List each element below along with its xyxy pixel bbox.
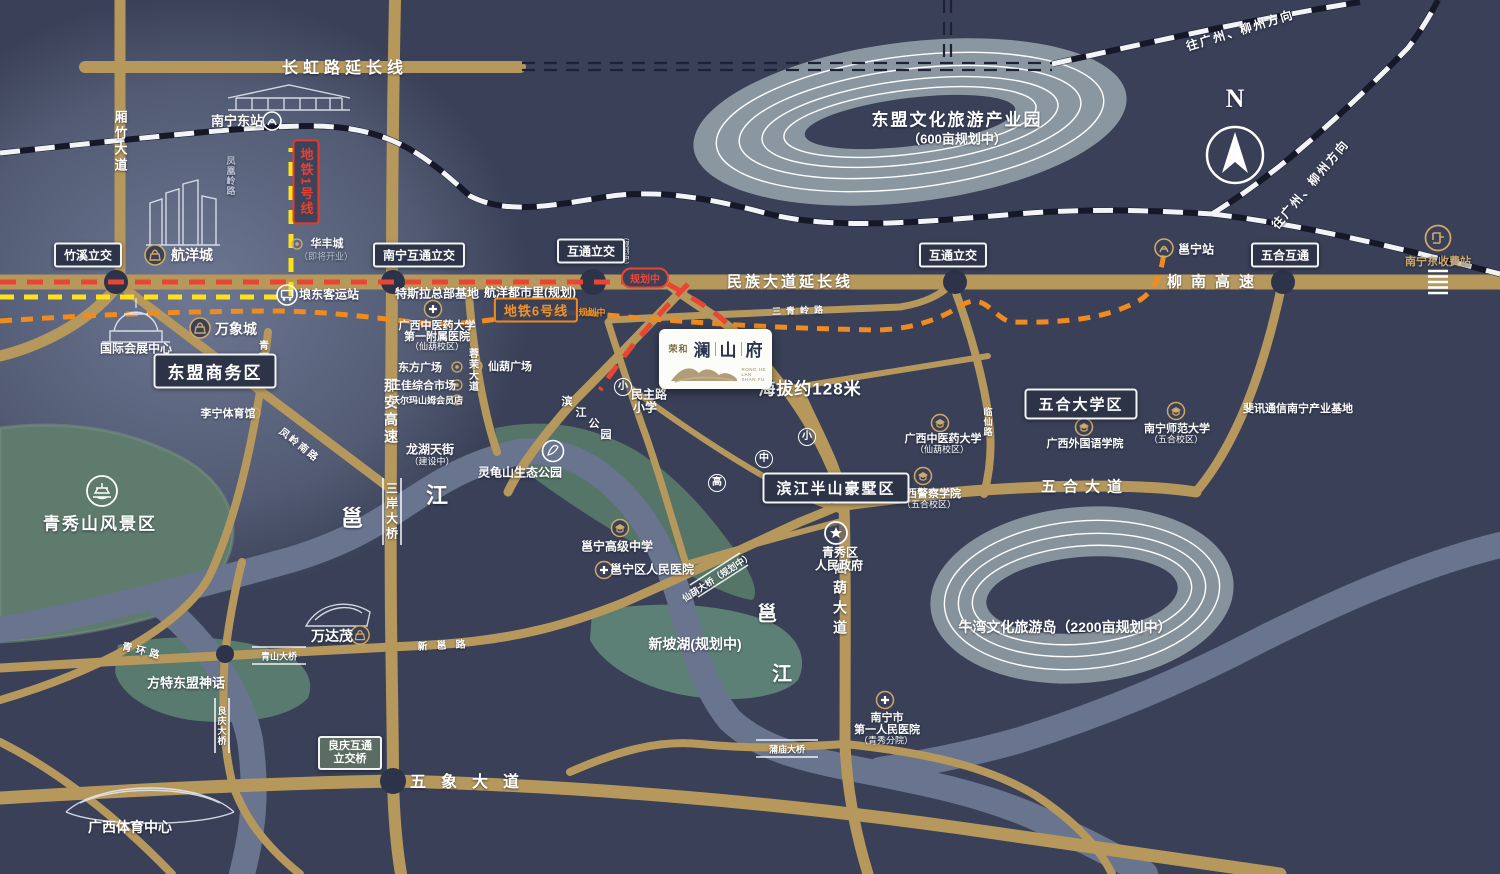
middle-school-marker: 中	[755, 450, 773, 468]
park-label-binjiang-char: 园	[601, 426, 612, 442]
label-walmart-sams: 沃尔玛山姆会员店	[391, 394, 463, 407]
logo-brand: 荣和	[668, 342, 688, 355]
road-label-liunan: 柳南高速	[1167, 271, 1263, 292]
label-niuwan-island: 牛湾文化旅游岛（2200亩规划中）	[958, 617, 1171, 637]
badge-line1: 良庆互通	[328, 740, 372, 752]
park-label-binjiang-char: 滨	[562, 393, 573, 409]
label-huafengcheng-sub: （即将开业）	[299, 250, 353, 263]
label-normal-university-campus: （五合校区）	[1149, 433, 1203, 446]
logo-char-fu: 府	[746, 336, 763, 361]
bridge-label-pumiao: 蒲庙大桥	[769, 743, 805, 756]
school-icon	[610, 518, 630, 538]
road-label-minzu: 民族大道延长线	[727, 271, 853, 292]
label-lining-gym: 李宁体育馆	[201, 405, 256, 421]
label-hangyangcheng: 航洋城	[171, 245, 213, 265]
road-label-sanqingling: 三青岭路	[772, 303, 828, 318]
high-school-marker: 高	[708, 474, 726, 492]
metro-line1-label: 地铁1号线	[293, 139, 320, 224]
road-label-xinyong: 新邕路	[417, 635, 475, 653]
label-tesla-base: 特斯拉总部基地	[395, 285, 479, 302]
label-gx-sports-center: 广西体育中心	[88, 817, 172, 837]
river-label-jiang: 江	[426, 478, 448, 510]
label-linggui-eco-park: 灵龟山生态公园	[478, 464, 562, 481]
label-tcm-university-campus: （仙葫校区）	[915, 443, 969, 456]
planning-pill: 规划中	[621, 268, 669, 289]
toll-station-icon	[1423, 223, 1453, 253]
label-xinpohu: 新坡湖(规划中)	[648, 634, 741, 654]
road-label-changhong: 长虹路延长线	[282, 54, 408, 78]
poi-dot-icon	[291, 238, 303, 250]
interchange-badge-hutong: 互通立交	[557, 239, 625, 264]
bridge-label-sanan: 三岸大桥	[384, 482, 401, 542]
road-label-rongmo: 蓉茉大道	[465, 348, 480, 392]
metro-line6-label: 地铁6号线	[494, 298, 578, 323]
label-qingxiu-gov-line2: 人民政府	[815, 557, 863, 574]
toll-gate-stripes	[1428, 271, 1448, 293]
label-dongmeng-park: 东盟文化旅游产业园	[872, 106, 1043, 131]
interchange-badge-zhuxi: 竹溪立交	[54, 243, 122, 268]
university-icon	[1166, 401, 1186, 421]
interchange-badge-liangqing: 良庆互通 立交桥	[318, 736, 382, 770]
rail-logo-icon	[261, 110, 283, 132]
label-first-hospital-branch: （青秀分院）	[859, 734, 913, 747]
compass-north-label: N	[1226, 84, 1245, 114]
label-nanning-east-station: 南宁东站	[211, 111, 263, 130]
label-minzhu-school-line2: 小学	[633, 399, 657, 416]
road-label-fenghuangling: 凤凰岭路	[225, 156, 238, 196]
road-label-linxian: 临仙路	[982, 407, 995, 437]
logo-divider	[715, 342, 716, 356]
label-feixun-base: 斐讯通信南宁产业基地	[1243, 400, 1353, 416]
bus-icon	[275, 283, 299, 307]
label-xianhu-plaza: 仙葫广场	[488, 358, 532, 374]
hospital-icon	[875, 690, 895, 710]
metro-line6-planning-note: 规划中	[578, 306, 605, 319]
river-label-jiang: 江	[772, 658, 792, 687]
district-box-binjiang-villa: 滨江半山豪墅区	[762, 473, 909, 504]
mall-icon	[143, 243, 167, 267]
label-police-college-campus: （五合校区）	[902, 498, 956, 511]
river-label-yong: 邕	[341, 501, 363, 533]
location-map: 小 小 中 高 长虹路延长线 厢竹大道 凤凰岭路 民族大道延长线 柳南高速 那安…	[0, 0, 1500, 874]
logo-char-shan: 山	[720, 336, 737, 361]
label-yongning-station: 邕宁站	[1178, 241, 1214, 258]
district-box-wuhe-univ: 五合大学区	[1024, 389, 1137, 420]
road-label-xiangzhu: 厢竹大道	[111, 110, 130, 174]
label-zhengjia-market: 正佳综合市场	[390, 377, 456, 393]
road-label-wuxiang-ave: 五象大道	[410, 768, 534, 792]
river-label-yong: 邕	[757, 598, 777, 627]
park-label-binjiang-char: 江	[576, 404, 587, 420]
compass-icon	[1207, 127, 1263, 183]
university-icon	[1074, 417, 1094, 437]
label-wanxiangcheng: 万象城	[215, 319, 257, 339]
label-qingxiushan: 青秀山风景区	[43, 510, 157, 535]
label-langdong-bus-station: 埌东客运站	[299, 286, 359, 303]
university-icon	[913, 466, 933, 486]
elementary-school-marker: 小	[614, 378, 632, 396]
label-toll-station: 南宁东收费站	[1405, 253, 1471, 269]
label-tcm-hospital-campus: （仙葫校区）	[410, 340, 464, 353]
label-dongmeng-park-sub: （600亩规划中）	[907, 129, 1007, 148]
hospital-icon	[423, 299, 443, 319]
interchange-badge-hutong: 互通立交	[919, 243, 987, 268]
label-dongfang-plaza: 东方广场	[398, 359, 442, 375]
label-longhu-street-sub: （建设中）	[409, 455, 454, 468]
logo-char-lan: 澜	[694, 336, 711, 361]
elementary-school-marker: 小	[798, 428, 816, 446]
logo-en-line3: SHAN FU	[741, 377, 766, 382]
road-label-wuhe-ave: 五合大道	[1041, 476, 1129, 497]
rail-logo-icon	[1153, 237, 1175, 259]
badge-line2: 立交桥	[334, 753, 367, 765]
interchange-badge-wuhe-hutong: 五合互通	[1251, 243, 1319, 268]
government-star-icon	[823, 520, 849, 546]
interchange-badge-nanning-hutong: 南宁互通立交	[373, 243, 465, 268]
label-foreign-language-college: 广西外国语学院	[1047, 435, 1124, 451]
project-logo-ronghe-lanshanfu: 荣和 澜 山 府 RONG HE LAN SHAN FU	[659, 329, 772, 389]
poi-dot-icon	[451, 361, 463, 373]
bridge-label-qingshan: 青山大桥	[261, 650, 297, 663]
district-box-dongmeng-biz: 东盟商务区	[154, 354, 277, 389]
bridge-label-liangqing: 良庆大桥	[216, 706, 229, 746]
label-elevation: 海拔约128米	[758, 375, 861, 400]
label-yongning-hospital: 邕宁区人民医院	[610, 561, 694, 578]
mall-icon	[188, 316, 212, 340]
logo-mountain-art	[669, 363, 739, 385]
pagoda-icon	[84, 473, 120, 509]
label-wandamao: 万达茂	[311, 626, 353, 646]
eco-park-icon	[540, 438, 566, 464]
logo-english: RONG HE LAN SHAN FU	[741, 367, 766, 382]
label-fangte: 方特东盟神话	[147, 673, 225, 692]
label-yongning-high-school: 邕宁高级中学	[581, 538, 653, 555]
park-label-binjiang-char: 公	[589, 415, 600, 431]
wandamao-art	[306, 604, 370, 626]
logo-name-row: 荣和 澜 山 府	[659, 336, 772, 361]
logo-divider	[741, 342, 742, 356]
